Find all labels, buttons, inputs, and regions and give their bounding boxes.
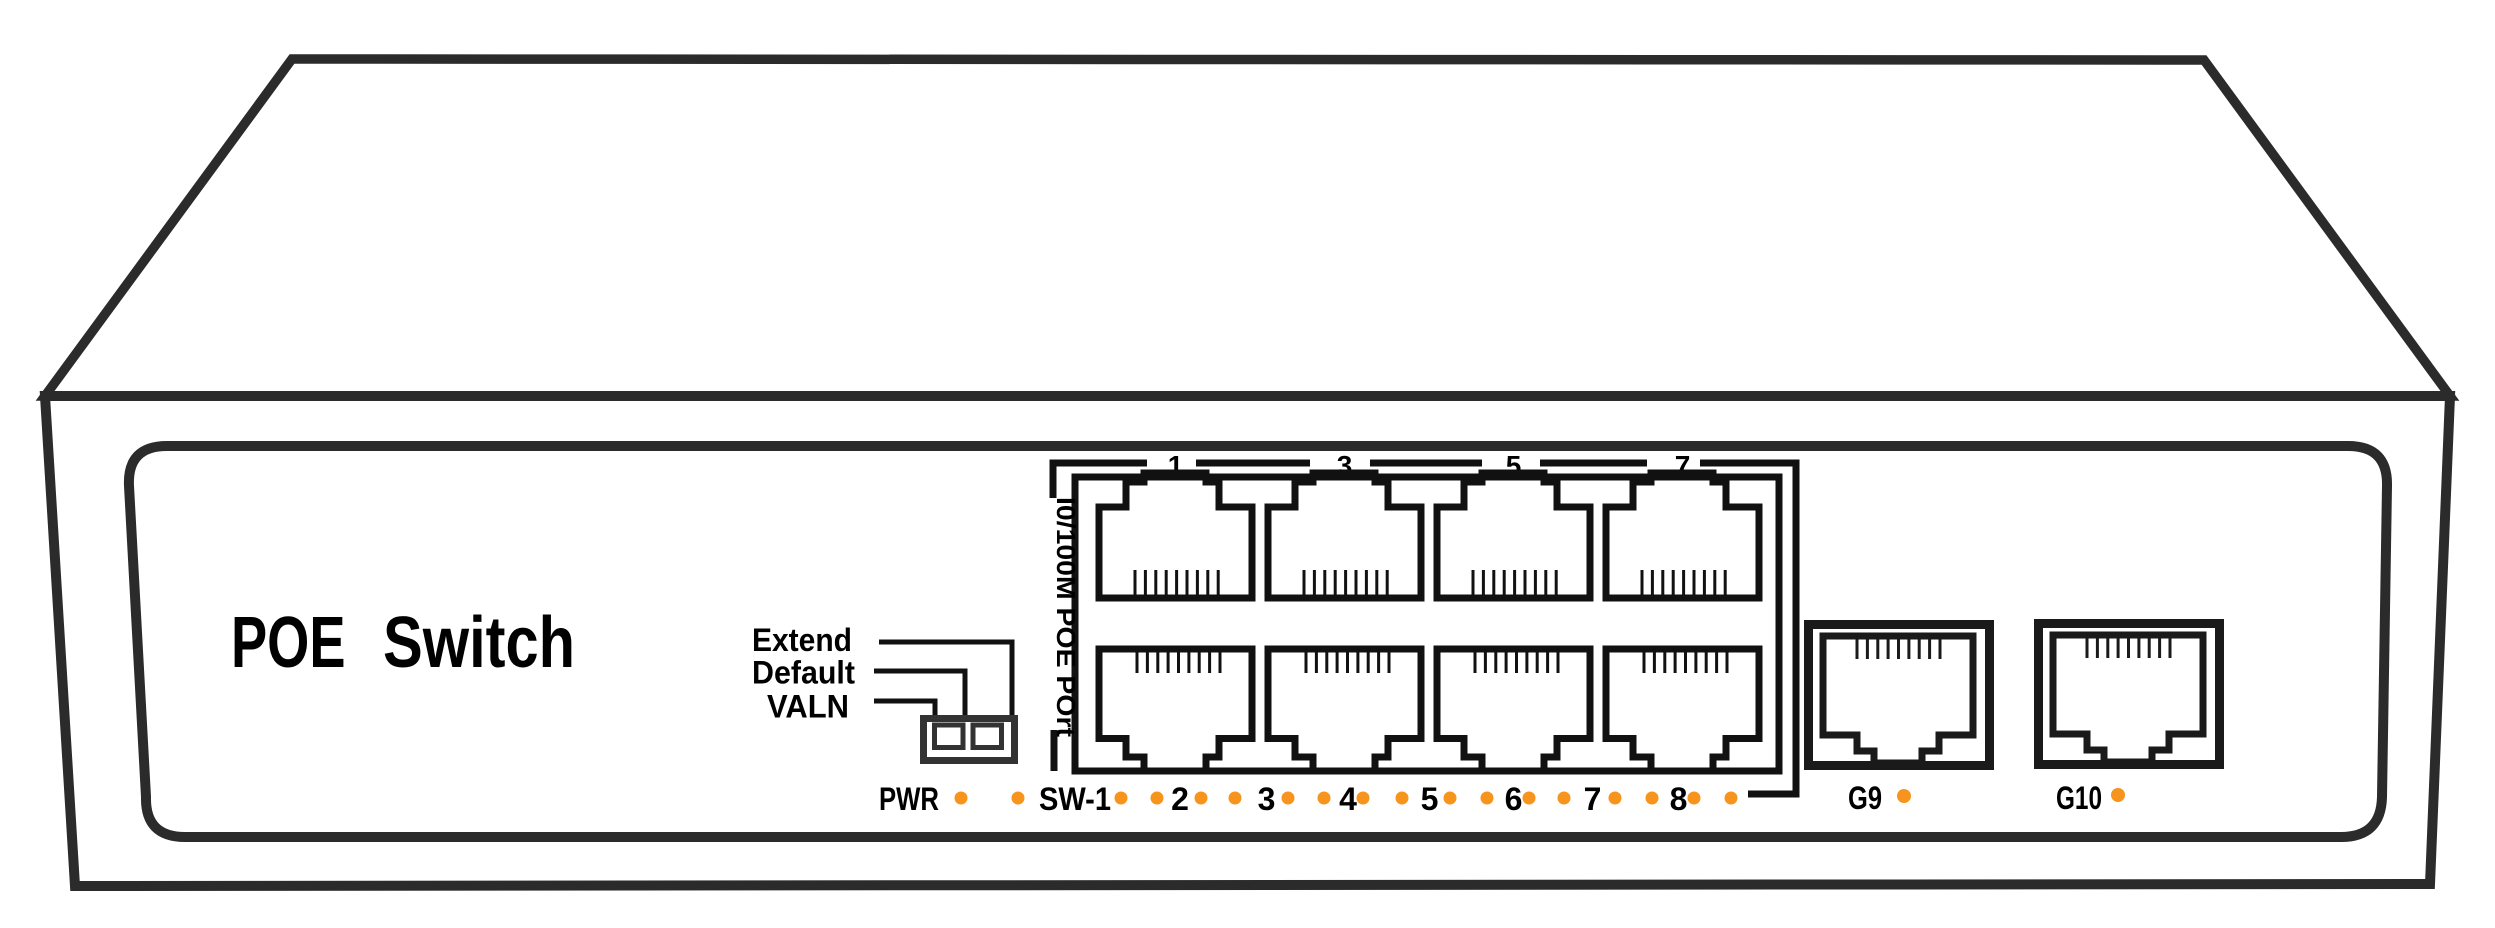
svg-text:8: 8 [1670, 781, 1688, 817]
svg-text:4: 4 [1339, 781, 1357, 817]
svg-text:6: 6 [1505, 781, 1523, 817]
svg-text:G10: G10 [2056, 780, 2102, 816]
svg-text:Switch: Switch [383, 603, 575, 683]
svg-text:SW-1: SW-1 [1039, 781, 1111, 817]
svg-text:5: 5 [1421, 781, 1439, 817]
svg-text:2: 2 [1171, 781, 1189, 817]
svg-text:Default: Default [752, 655, 855, 691]
svg-text:PWR: PWR [879, 781, 939, 817]
svg-text:I0/100M POE POrt: I0/100M POE POrt [1051, 497, 1081, 737]
svg-text:Extend: Extend [752, 622, 852, 658]
svg-text:G9: G9 [1848, 780, 1882, 816]
svg-text:7: 7 [1584, 781, 1602, 817]
svg-text:VALN: VALN [767, 689, 849, 725]
svg-text:POE: POE [231, 603, 346, 683]
svg-text:3: 3 [1258, 781, 1276, 817]
